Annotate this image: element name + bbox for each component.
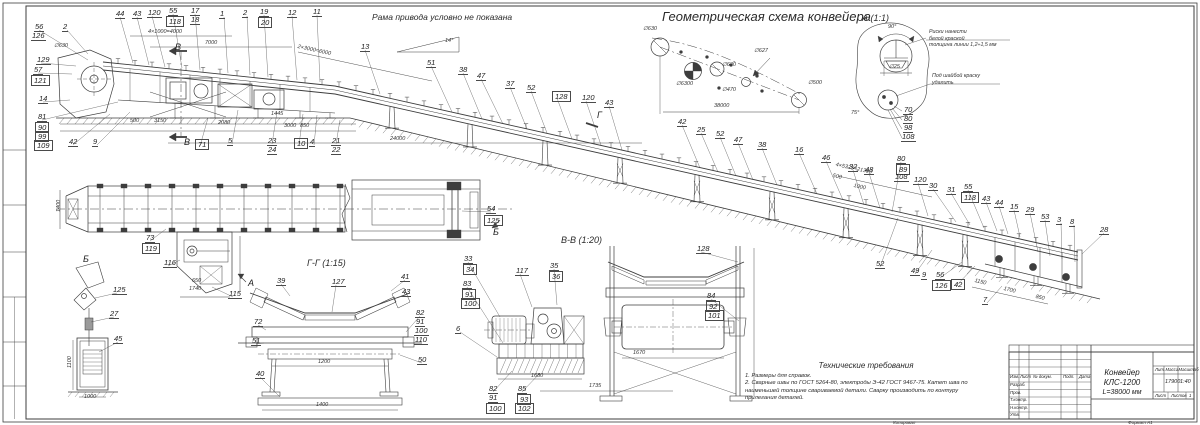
callout-label: 84 xyxy=(706,292,716,301)
callout-label: 41 xyxy=(400,273,410,282)
titleblock-scale-value: 1:40 xyxy=(1180,380,1191,385)
callout-label: 85 xyxy=(517,385,527,394)
titleblock-mass-header: Масса xyxy=(1166,368,1179,373)
callout-label: 117 xyxy=(515,267,529,276)
callout-label: 25 xyxy=(696,126,706,135)
titleblock-col-podp: Подп. xyxy=(1063,375,1074,380)
technical-requirements-line: 2. Сварные швы по ГОСТ 5264-80, электрод… xyxy=(745,380,987,387)
dimension-label: 650 xyxy=(192,279,201,285)
drawing-length: L=38000 мм xyxy=(1092,388,1152,398)
callout-label: 27 xyxy=(109,310,119,319)
technical-requirements-title: Технические требования xyxy=(745,361,987,370)
callout-label: 28 xyxy=(1099,226,1109,235)
scheme-dimension-label: ∅630 xyxy=(722,63,736,69)
callout-label: 13 xyxy=(360,43,370,52)
scheme-dimension-label: ∅627 xyxy=(754,49,768,55)
scheme-dimension-label: ∅470 xyxy=(722,88,736,94)
callout-label: 44 xyxy=(994,199,1004,208)
callout-label: 118 xyxy=(166,16,184,27)
detail-a-note-paint: Риски нанести белой краской толщина лини… xyxy=(929,29,997,49)
callout-label: 116 xyxy=(163,259,177,268)
callout-label: 50 xyxy=(417,356,427,365)
detail-a-note-washer: Под шайбой краску удалить xyxy=(932,73,980,86)
dimension-label: 1100 xyxy=(68,356,74,368)
dimension-label: 2080 xyxy=(218,121,230,127)
callout-label: 16 xyxy=(794,146,804,155)
titleblock-col-doc: № докум. xyxy=(1033,375,1052,380)
callout-label: 5 xyxy=(227,137,233,146)
callout-label: 55 xyxy=(168,7,178,16)
callout-label: 19 xyxy=(259,8,269,17)
callout-label: 47 xyxy=(733,136,743,145)
callout-label: 129 xyxy=(36,56,51,65)
callout-label: 127 xyxy=(331,278,346,287)
technical-requirements-line: наименьшей толщине свариваемой детали. С… xyxy=(745,388,987,395)
callout-label: 120 xyxy=(581,94,596,103)
callout-label: 18 xyxy=(190,16,200,25)
callout-label: 37 xyxy=(505,80,515,89)
callout-label: 29 xyxy=(1025,206,1035,215)
callout-label: А xyxy=(247,280,255,288)
callout-label: 9 xyxy=(92,138,98,147)
footer-format: Формат А1 xyxy=(1128,420,1153,425)
callout-label: 126 xyxy=(932,280,951,291)
callout-label: 30 xyxy=(928,182,938,191)
dimension-label: 1740 xyxy=(189,287,201,293)
callout-label: 43 xyxy=(604,99,614,108)
dimension-label: 500 xyxy=(130,119,139,125)
callout-label: 72 xyxy=(253,318,263,327)
titleblock-col-list: Лист xyxy=(1020,375,1031,380)
callout-label: 108 xyxy=(894,173,909,182)
callout-label: 115 xyxy=(228,290,242,299)
titleblock-col-data: Дата xyxy=(1079,375,1090,380)
dimension-label: 1445 xyxy=(271,112,283,118)
callout-label: 120 xyxy=(147,9,162,18)
dimension-label: 1670 xyxy=(633,351,645,357)
dimension-label: 90° xyxy=(888,25,896,31)
callout-label: 2 xyxy=(62,23,68,32)
callout-label: 52 xyxy=(526,84,536,93)
dimension-label: 1200 xyxy=(318,360,330,366)
titleblock-scale-header: Масштаб xyxy=(1179,368,1199,373)
callout-label: 12 xyxy=(287,9,297,18)
callout-label: 2 xyxy=(242,9,248,18)
callout-label: 22 xyxy=(331,146,341,155)
dimension-label: 4×1000=4000 xyxy=(148,30,182,36)
dimension-label: 7000 xyxy=(205,41,217,47)
callout-label: 15 xyxy=(1009,203,1019,212)
callout-label: 125 xyxy=(484,215,503,226)
titleblock-sheet-header: Лист xyxy=(1155,394,1166,399)
callout-label: 128 xyxy=(552,91,571,102)
section-gg-title: Г-Г (1:15) xyxy=(307,259,346,268)
callout-label: 43 xyxy=(401,288,411,297)
callout-label: 43 xyxy=(981,195,991,204)
callout-label: 42 xyxy=(951,279,965,290)
titleblock-name: Конвейер КЛС-1200 L=38000 мм xyxy=(1092,368,1152,398)
titleblock-role-utv: Утв. xyxy=(1010,413,1020,418)
callout-label: 38 xyxy=(757,141,767,150)
callout-label: 47 xyxy=(476,72,486,81)
section-gg xyxy=(238,288,422,410)
callout-label: 7 xyxy=(982,296,988,305)
callout-label: 40 xyxy=(255,370,265,379)
dimension-label: ∅630 xyxy=(54,44,68,50)
callout-label: 118 xyxy=(961,192,979,203)
callout-label: 6 xyxy=(455,325,461,334)
callout-label: 119 xyxy=(142,243,160,254)
technical-requirements-line: 1. Размеры для справок. xyxy=(745,373,987,380)
sheet-frame xyxy=(3,3,1197,422)
dimension-label: 1735 xyxy=(589,384,601,390)
callout-label: 3 xyxy=(1056,216,1062,225)
callout-label: 100 xyxy=(486,403,505,414)
callout-label: 109 xyxy=(34,140,53,151)
scheme-dimension-label: ∅500 xyxy=(808,81,822,87)
dimension-label: 14° xyxy=(445,39,453,45)
scheme-dimension-label: ∅6300 xyxy=(676,82,693,88)
callout-label: 100 xyxy=(461,298,480,309)
callout-label: 125 xyxy=(112,286,127,295)
callout-label: 33 xyxy=(463,255,473,264)
dimension-label: 1680 xyxy=(531,374,543,380)
titleblock-role-prov: Пров. xyxy=(1010,391,1021,396)
titleblock-mass-value: 17900 xyxy=(1165,380,1180,385)
titleblock-role-nkontr: Н.контр. xyxy=(1010,406,1028,411)
drawing-geometry xyxy=(0,0,1200,425)
section-vv-title: В-В (1:20) xyxy=(561,236,602,245)
callout-label: В xyxy=(174,44,182,52)
callout-label: 102 xyxy=(515,403,534,414)
callout-label: 73 xyxy=(145,234,155,243)
dimension-label: ∅25 xyxy=(889,65,900,71)
technical-requirements-line: прилегания деталей. xyxy=(745,395,987,402)
footer-copied: Копировал xyxy=(893,420,915,425)
callout-label: 34 xyxy=(463,264,477,275)
callout-label: 101 xyxy=(705,310,724,321)
callout-label: 126 xyxy=(31,32,46,41)
callout-label: 36 xyxy=(549,271,563,282)
callout-label: 71 xyxy=(195,139,209,150)
callout-label: 45 xyxy=(113,335,123,344)
callout-label: 20 xyxy=(258,17,272,28)
callout-label: 55 xyxy=(963,183,973,192)
dimension-label: 850 xyxy=(300,124,309,130)
dimension-label: 1400 xyxy=(57,200,63,212)
callout-label: 81 xyxy=(37,113,47,122)
detail-b xyxy=(68,262,118,397)
titleblock-lit-header: Лит. xyxy=(1155,368,1165,373)
callout-label: 49 xyxy=(910,267,920,276)
dimension-label: 24000 xyxy=(390,137,405,143)
callout-label: 54 xyxy=(486,205,496,214)
callout-label: 4 xyxy=(309,138,315,147)
callout-label: 52 xyxy=(715,130,725,139)
dimension-label: 3000 xyxy=(284,124,296,130)
callout-label: 80 xyxy=(896,155,906,164)
callout-label: 51 xyxy=(251,337,261,346)
dimension-label: 1400 xyxy=(316,403,328,409)
drawing-sheet: Рама привода условно не показана Геометр… xyxy=(0,0,1200,425)
callout-label: Б xyxy=(82,256,90,264)
callout-label: 11 xyxy=(312,8,322,17)
callout-label: 10 xyxy=(294,138,308,149)
callout-label: 108 xyxy=(901,133,916,142)
drawing-name: Конвейер КЛС-1200 xyxy=(1092,368,1152,388)
callout-label: Б xyxy=(492,229,500,237)
callout-label: 83 xyxy=(462,280,472,289)
callout-label: 31 xyxy=(946,186,956,195)
titleblock-role-tkontr: Т.контр. xyxy=(1010,398,1027,403)
callout-label: 39 xyxy=(276,277,286,286)
technical-requirements: Технические требования 1. Размеры для сп… xyxy=(745,361,987,402)
callout-label: 14 xyxy=(38,95,48,104)
callout-label: 52 xyxy=(875,260,885,269)
detail-a-title: А (1:1) xyxy=(862,14,889,23)
titleblock-sheets-value: 1 xyxy=(1189,394,1191,399)
callout-label: 38 xyxy=(458,66,468,75)
callout-label: 120 xyxy=(913,176,928,185)
callout-label: 128 xyxy=(696,245,711,254)
callout-label: 42 xyxy=(68,138,78,147)
dimension-label: 1000 xyxy=(84,395,96,401)
callout-label: 24 xyxy=(267,146,277,155)
callout-label: 8 xyxy=(1069,218,1075,227)
callout-label: 1 xyxy=(219,10,225,19)
callout-label: 53 xyxy=(1040,213,1050,222)
callout-label: 43 xyxy=(132,10,142,19)
dimension-label: 3150 xyxy=(154,119,166,125)
callout-label: 91 xyxy=(488,394,498,403)
callout-label: 9 xyxy=(921,271,927,280)
callout-label: 42 xyxy=(677,118,687,127)
callout-label: 44 xyxy=(115,10,125,19)
dimension-label: 75° xyxy=(851,111,859,117)
titleblock-role-razrab: Разраб. xyxy=(1010,383,1026,388)
callout-label: 51 xyxy=(426,59,436,68)
titleblock-col-izm: Изм. xyxy=(1010,375,1019,380)
callout-label: Г xyxy=(596,112,603,120)
callout-label: В xyxy=(183,139,191,147)
callout-label: 121 xyxy=(31,75,50,86)
scheme-dimension-label: 38000 xyxy=(714,104,729,110)
titleblock-sheets-header: Листов xyxy=(1171,394,1187,399)
scheme-title: Геометрическая схема конвейера xyxy=(662,10,871,23)
callout-label: 57 xyxy=(33,66,43,75)
callout-label: 35 xyxy=(549,262,559,271)
callout-label: 46 xyxy=(821,154,831,163)
frame-note: Рама привода условно не показана xyxy=(372,13,512,22)
scheme-dimension-label: ∅630 xyxy=(643,27,657,33)
callout-label: 110 xyxy=(414,336,428,345)
callout-label: 56 xyxy=(935,271,945,280)
